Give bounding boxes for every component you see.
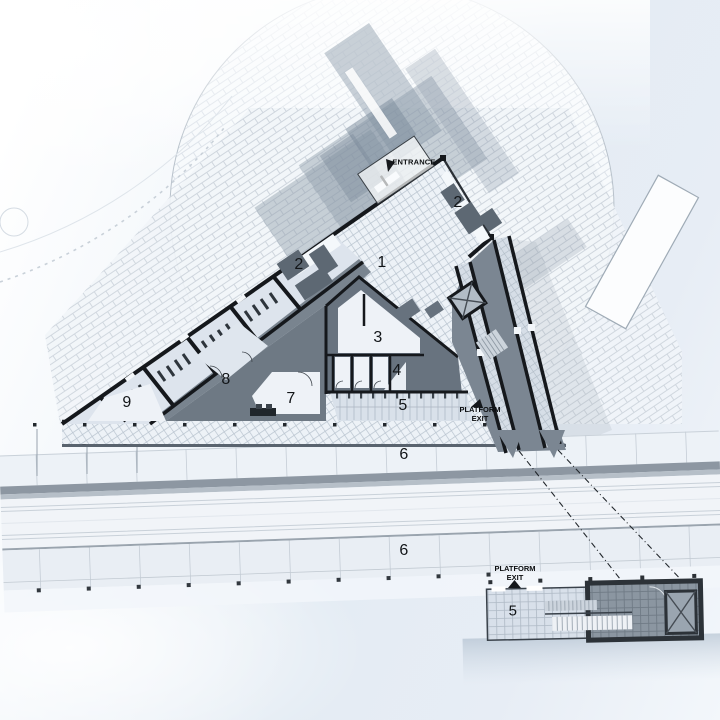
room-label-1: 1 bbox=[377, 254, 386, 272]
room-label-6-lower: 6 bbox=[399, 542, 408, 560]
room-label-7: 7 bbox=[286, 390, 295, 408]
room-label-2-left: 2 bbox=[294, 256, 303, 274]
platform-exit-line1: PLATFORM bbox=[459, 405, 500, 414]
room-label-2-right: 2 bbox=[453, 194, 462, 212]
inset-platform-exit-line2: EXIT bbox=[507, 573, 524, 582]
inset-room-label-5: 5 bbox=[509, 603, 518, 620]
room-label-4: 4 bbox=[392, 362, 401, 380]
room-label-5: 5 bbox=[398, 397, 407, 415]
room-label-9: 9 bbox=[122, 394, 131, 412]
room-label-6-upper: 6 bbox=[399, 446, 408, 464]
floor-plan-canvas: 1 2 2 3 4 5 6 6 7 8 9 5 ENTRANCE PLATFOR… bbox=[0, 0, 720, 720]
entrance-label: ENTRANCE bbox=[392, 158, 435, 167]
platform-exit-line2: EXIT bbox=[472, 414, 489, 423]
inset-elevator-icon bbox=[666, 591, 697, 634]
plan-drawing bbox=[0, 0, 720, 720]
inset-platform-exit-label: PLATFORMEXIT bbox=[494, 564, 535, 582]
room-label-8: 8 bbox=[221, 371, 230, 389]
inset-platform-exit-line1: PLATFORM bbox=[494, 564, 535, 573]
room-label-3: 3 bbox=[373, 329, 382, 347]
platform-exit-label: PLATFORMEXIT bbox=[459, 405, 500, 423]
